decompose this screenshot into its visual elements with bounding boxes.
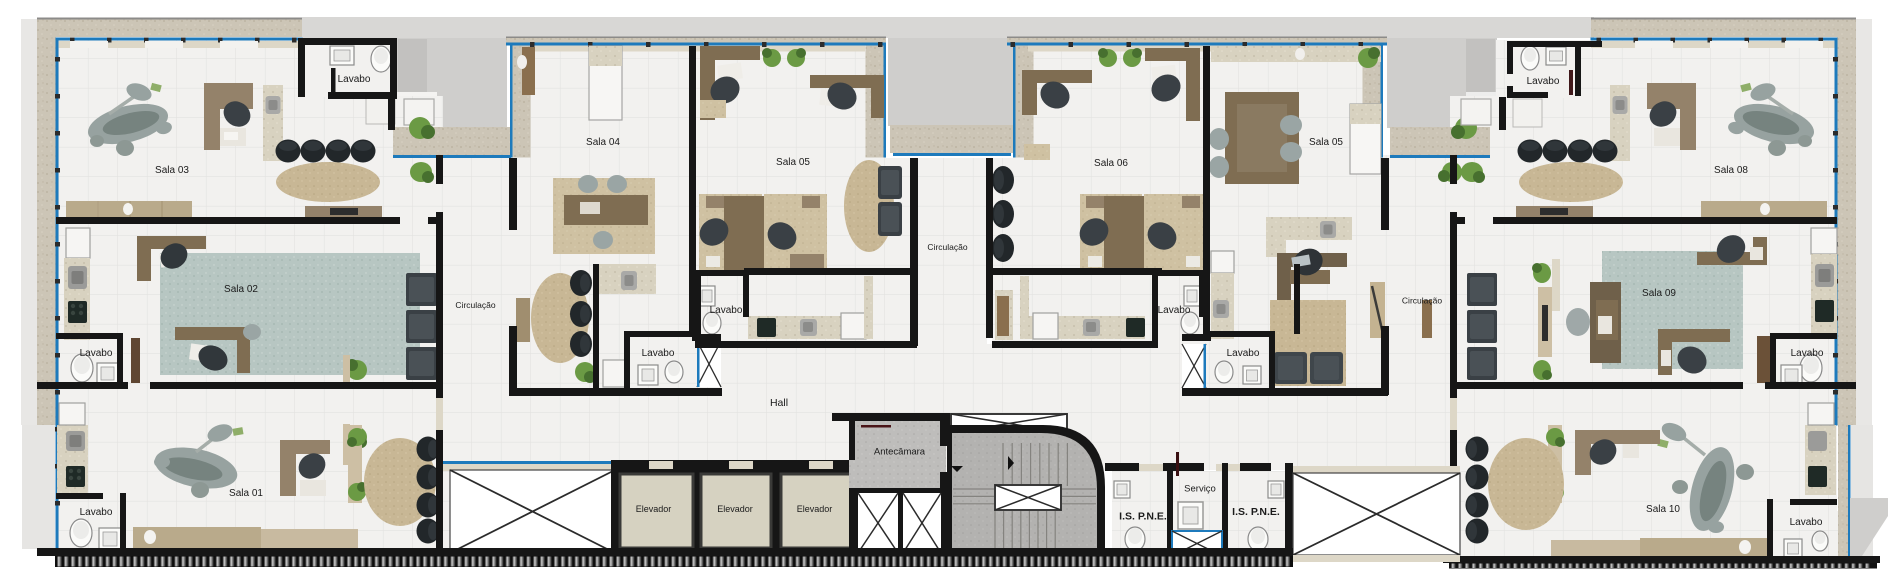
svg-text:Lavabo: Lavabo xyxy=(338,74,371,85)
svg-text:Sala 05: Sala 05 xyxy=(776,157,810,168)
svg-text:Circulação: Circulação xyxy=(455,300,495,310)
svg-text:Lavabo: Lavabo xyxy=(1790,517,1823,528)
svg-text:Lavabo: Lavabo xyxy=(80,348,113,359)
svg-text:Elevador: Elevador xyxy=(797,504,833,514)
svg-text:I.S. P.N.E.: I.S. P.N.E. xyxy=(1119,511,1167,523)
svg-text:I.S. P.N.E.: I.S. P.N.E. xyxy=(1232,506,1280,518)
svg-text:Elevador: Elevador xyxy=(636,504,672,514)
svg-text:Antecâmara: Antecâmara xyxy=(874,447,926,458)
svg-text:Sala 09: Sala 09 xyxy=(1642,288,1676,299)
svg-text:Lavabo: Lavabo xyxy=(642,348,675,359)
svg-text:Lavabo: Lavabo xyxy=(80,507,113,518)
svg-text:Sala 03: Sala 03 xyxy=(155,165,189,176)
svg-text:Sala 04: Sala 04 xyxy=(586,137,620,148)
svg-text:Sala 05: Sala 05 xyxy=(1309,137,1343,148)
svg-text:Lavabo: Lavabo xyxy=(1791,348,1824,359)
svg-text:Sala 10: Sala 10 xyxy=(1646,504,1680,515)
svg-text:Hall: Hall xyxy=(770,397,788,409)
svg-text:Lavabo: Lavabo xyxy=(710,305,743,316)
svg-text:Lavabo: Lavabo xyxy=(1158,305,1191,316)
svg-text:Sala 06: Sala 06 xyxy=(1094,158,1128,169)
svg-text:Circulação: Circulação xyxy=(1402,296,1442,306)
svg-text:Lavabo: Lavabo xyxy=(1227,348,1260,359)
svg-text:Circulação: Circulação xyxy=(927,242,967,252)
svg-text:Sala 08: Sala 08 xyxy=(1714,165,1748,176)
svg-text:Serviço: Serviço xyxy=(1184,484,1216,495)
svg-text:Sala 02: Sala 02 xyxy=(224,284,258,295)
svg-text:Elevador: Elevador xyxy=(717,504,753,514)
svg-text:Sala 01: Sala 01 xyxy=(229,488,263,499)
svg-text:Lavabo: Lavabo xyxy=(1527,76,1560,87)
